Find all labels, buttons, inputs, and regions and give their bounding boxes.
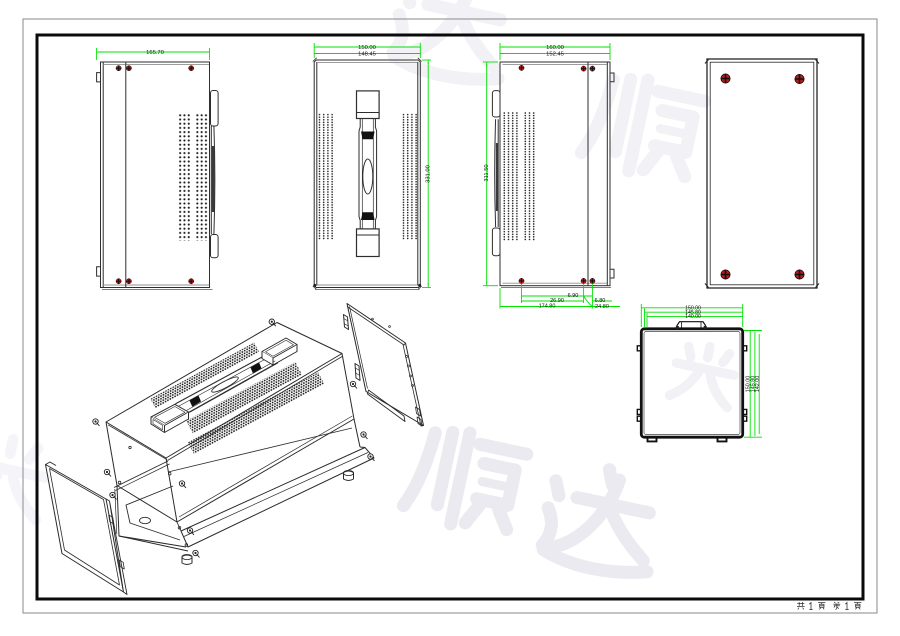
svg-text:152.45: 152.45	[546, 52, 564, 58]
svg-text:24.80: 24.80	[595, 304, 609, 310]
svg-text:331.00: 331.00	[426, 165, 432, 183]
svg-text:311.50: 311.50	[484, 164, 490, 181]
svg-text:174.80: 174.80	[539, 304, 556, 310]
svg-text:150.00: 150.00	[358, 45, 376, 51]
svg-text:142.00: 142.00	[755, 376, 761, 393]
svg-text:140.00: 140.00	[685, 314, 701, 320]
svg-text:6.90: 6.90	[568, 293, 579, 299]
svg-text:165.70: 165.70	[146, 50, 164, 56]
svg-text:160.00: 160.00	[546, 45, 564, 51]
svg-text:148.45: 148.45	[358, 52, 376, 58]
